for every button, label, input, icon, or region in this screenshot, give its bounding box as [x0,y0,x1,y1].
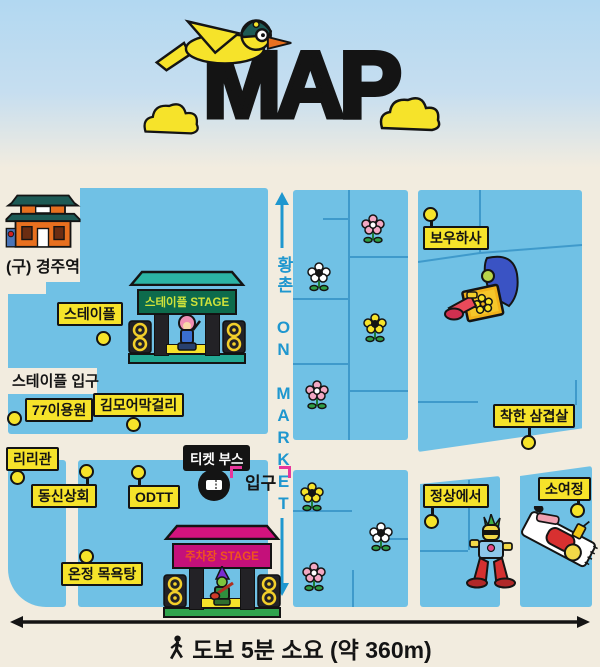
cloud-icon [376,88,446,134]
place-label-makgeolli: 김모어막걸리 [93,393,184,417]
cloud-icon [140,94,204,138]
lot-line [293,298,348,300]
flower-icon [304,380,330,410]
speaker-icon [257,574,281,608]
gyeongju-station-icon [4,190,82,256]
stage-platform [163,607,281,618]
lot-line [420,550,468,552]
reading-character-icon [443,252,525,328]
place-label-soyeojeong: 소여정 [538,477,591,501]
place-label-bowuhasa: 보우하사 [423,226,489,250]
location-marker [570,503,585,518]
lot-line [348,390,408,392]
street-arrow-up-icon [271,192,293,250]
stage-banner: 스테이플 STAGE [137,289,237,315]
speaker-icon [163,574,187,608]
location-marker [131,465,146,480]
stage-name: 주차장 STAGE [185,548,259,564]
location-marker [79,464,94,479]
stage-body [128,314,246,354]
lot-line [352,570,354,607]
stage-body [163,568,281,608]
place-label-jeongsang: 정상에서 [423,484,489,508]
performer-icon [204,566,240,606]
speaker-icon [222,320,246,354]
place-label-dongsin: 동신상회 [31,484,97,508]
lot-line [323,218,348,220]
location-marker [521,435,536,450]
speaker-icon [128,320,152,354]
festival-map: MAP [0,0,600,667]
flower-icon [360,214,386,244]
stage-truss [240,568,255,610]
flower-icon [362,313,388,343]
station-cutout-step [0,282,46,294]
lot-line [348,190,350,440]
walking-distance-arrow [10,613,590,631]
location-marker [126,417,141,432]
entrance-bracket-icon [279,466,291,478]
location-marker [424,514,439,529]
location-marker [10,470,25,485]
stage-truss [205,314,220,356]
place-label-ririgwan: 리리관 [6,447,59,471]
lounging-character-icon [518,506,598,574]
flower-icon [368,522,394,552]
ticket-booth-marker [198,469,230,501]
walking-distance-note: 도보 5분 소요 (약 360m) [0,631,600,665]
place-label-77barber: 77이용원 [25,398,93,422]
staple-stage: 스테이플 STAGE [128,270,246,364]
entrance-bracket-icon [230,466,242,478]
bird-icon [153,2,293,80]
lot-line [348,256,408,258]
place-label-odtt: ODTT [128,485,180,509]
location-marker [96,331,111,346]
place-label-onjeong: 온정 목욕탕 [61,562,143,586]
location-marker [423,207,438,222]
ticket-icon [205,479,223,491]
performer-icon [169,314,205,352]
location-marker [7,411,22,426]
flower-icon [306,262,332,292]
flower-icon [299,482,325,512]
staple-entrance-note: 스테이플 입구 [12,370,99,391]
dancing-character-icon [462,514,518,590]
walking-person-icon [168,635,185,661]
lot-line [293,363,348,365]
stage-platform [128,353,246,364]
parking-stage: 주차장 STAGE [163,524,281,618]
place-label-chakhan: 착한 삼겹살 [493,404,575,428]
place-label-staple: 스테이플 [57,302,123,326]
station-label: (구) 경주역 [6,253,80,277]
stage-name: 스테이플 STAGE [145,294,229,310]
stage-roof [163,524,281,540]
entrance-label: 입구 [230,469,291,494]
stage-roof [128,270,246,286]
flower-icon [301,562,327,592]
